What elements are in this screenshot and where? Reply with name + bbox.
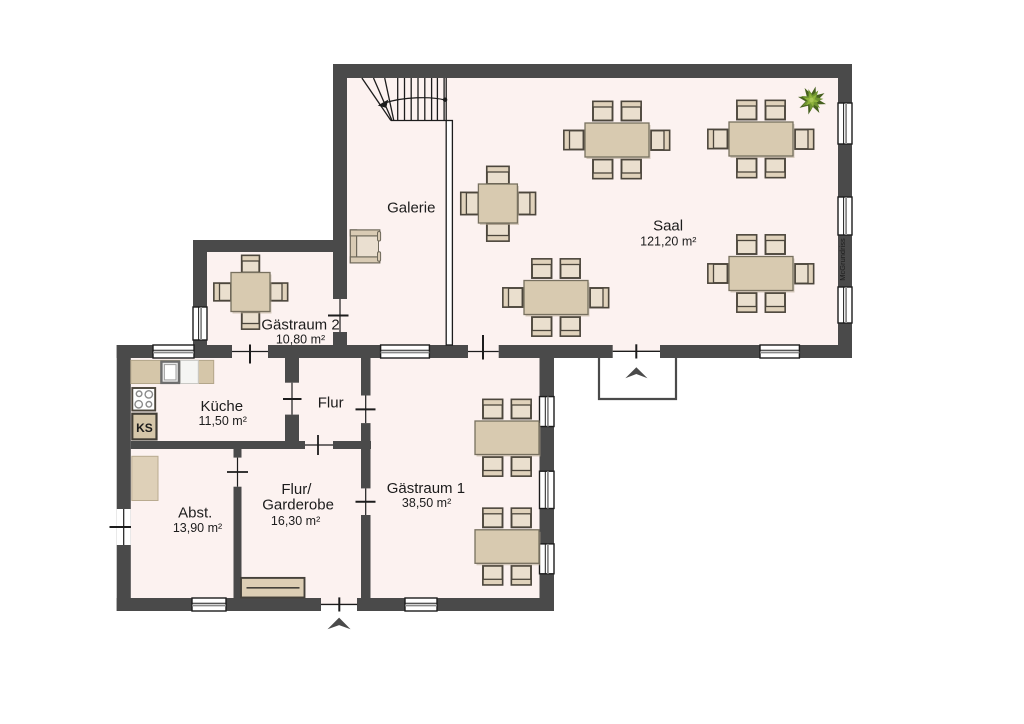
- svg-text:Gästraum 2: Gästraum 2: [261, 316, 339, 333]
- svg-text:Gästraum 1: Gästraum 1: [387, 480, 465, 497]
- svg-text:Flur/: Flur/: [281, 481, 312, 498]
- svg-text:Küche: Küche: [201, 398, 244, 415]
- svg-text:10,80 m²: 10,80 m²: [276, 332, 325, 346]
- svg-text:Garderobe: Garderobe: [262, 497, 334, 514]
- svg-text:16,30 m²: 16,30 m²: [271, 514, 320, 528]
- svg-text:Flur: Flur: [318, 395, 344, 412]
- svg-text:13,90 m²: 13,90 m²: [173, 521, 222, 535]
- svg-text:McGrundriss: McGrundriss: [838, 238, 847, 281]
- svg-text:Abst.: Abst.: [178, 504, 212, 521]
- svg-text:Saal: Saal: [653, 218, 683, 235]
- svg-text:121,20 m²: 121,20 m²: [640, 234, 696, 248]
- svg-text:38,50 m²: 38,50 m²: [402, 496, 451, 510]
- svg-text:KS: KS: [136, 421, 153, 435]
- svg-text:Galerie: Galerie: [387, 200, 435, 217]
- svg-text:11,50 m²: 11,50 m²: [198, 414, 246, 428]
